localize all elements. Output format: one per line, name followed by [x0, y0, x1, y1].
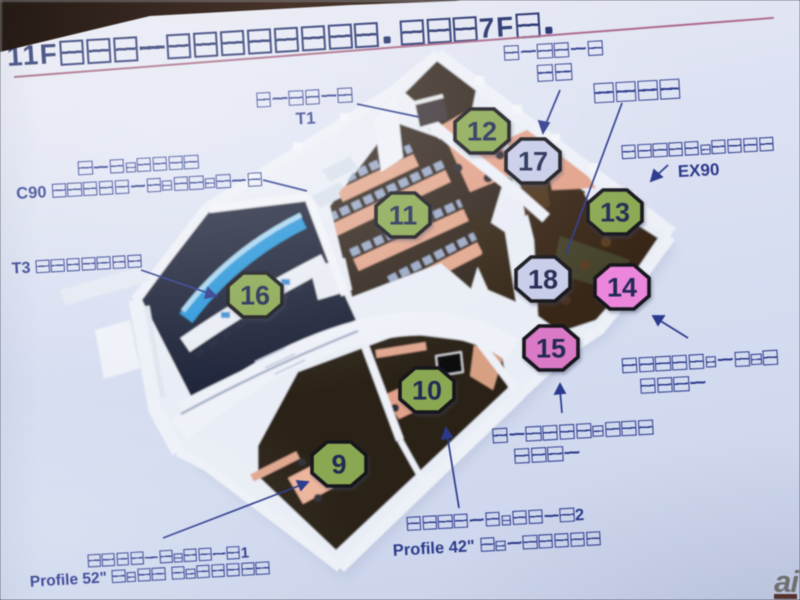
svg-text:13: 13	[600, 198, 630, 228]
svg-text:9: 9	[331, 450, 346, 480]
svg-text:10: 10	[412, 376, 442, 406]
svg-text:11: 11	[389, 201, 418, 231]
svg-text:14: 14	[607, 273, 637, 303]
svg-text:18: 18	[528, 265, 558, 295]
svg-text:12: 12	[467, 117, 497, 147]
svg-text:17: 17	[518, 147, 548, 177]
svg-text:16: 16	[240, 281, 270, 311]
svg-text:15: 15	[536, 334, 566, 364]
